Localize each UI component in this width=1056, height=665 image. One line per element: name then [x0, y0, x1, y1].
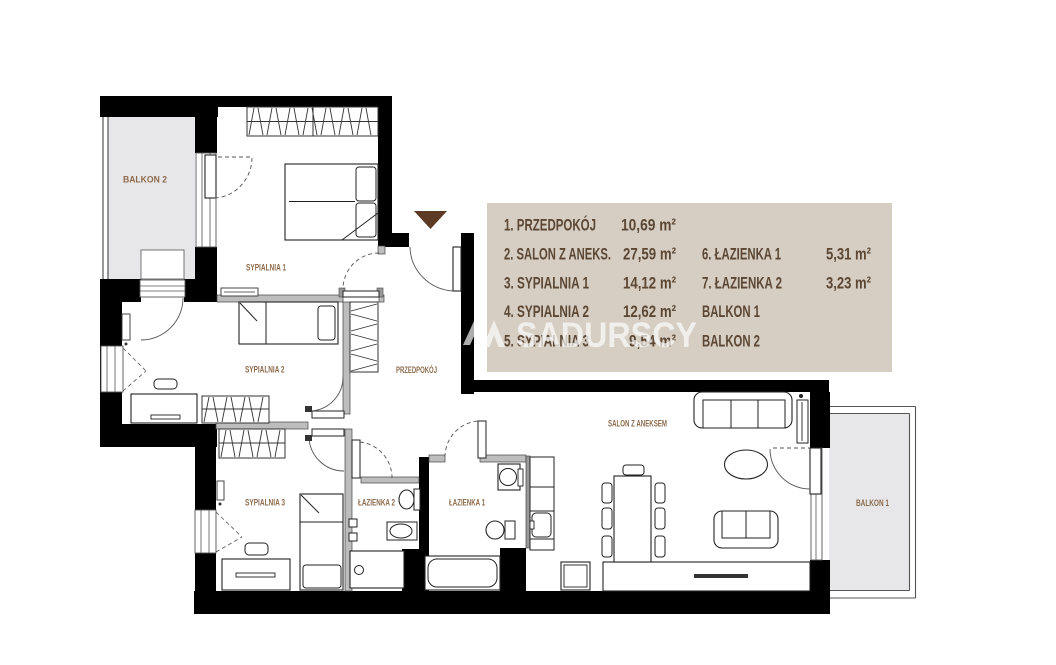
svg-text:SADURSCY: SADURSCY: [516, 316, 697, 355]
svg-text:SYPIALNIA 1: SYPIALNIA 1: [246, 262, 286, 272]
svg-text:BALKON 2: BALKON 2: [702, 331, 760, 350]
svg-text:1. PRZEDPOKÓJ: 1. PRZEDPOKÓJ: [504, 216, 596, 235]
svg-text:ŁAZIENKA 1: ŁAZIENKA 1: [449, 498, 485, 508]
svg-text:3. SYPIALNIA 1: 3. SYPIALNIA 1: [504, 273, 589, 292]
svg-text:PRZEDPOKÓJ: PRZEDPOKÓJ: [396, 364, 437, 375]
svg-text:5,31 m²: 5,31 m²: [826, 245, 871, 264]
svg-text:BALKON 1: BALKON 1: [702, 302, 760, 321]
svg-text:2. SALON Z ANEKS.: 2. SALON Z ANEKS.: [504, 245, 611, 264]
svg-text:27,59 m²: 27,59 m²: [623, 245, 676, 264]
svg-text:7. ŁAZIENKA 2: 7. ŁAZIENKA 2: [702, 273, 782, 292]
svg-text:BALKON 1: BALKON 1: [856, 498, 889, 508]
svg-text:6. ŁAZIENKA 1: 6. ŁAZIENKA 1: [702, 245, 781, 264]
svg-text:3,23 m²: 3,23 m²: [826, 273, 871, 292]
svg-text:SYPIALNIA 2: SYPIALNIA 2: [245, 365, 285, 375]
svg-text:ŁAZIENKA 2: ŁAZIENKA 2: [358, 498, 395, 508]
svg-text:SYPIALNIA 3: SYPIALNIA 3: [245, 498, 285, 508]
svg-text:SALON Z ANEKSEM: SALON Z ANEKSEM: [608, 419, 667, 429]
svg-text:10,69 m²: 10,69 m²: [621, 216, 676, 235]
svg-text:14,12 m²: 14,12 m²: [623, 273, 676, 292]
svg-text:BALKON 2: BALKON 2: [123, 175, 167, 185]
